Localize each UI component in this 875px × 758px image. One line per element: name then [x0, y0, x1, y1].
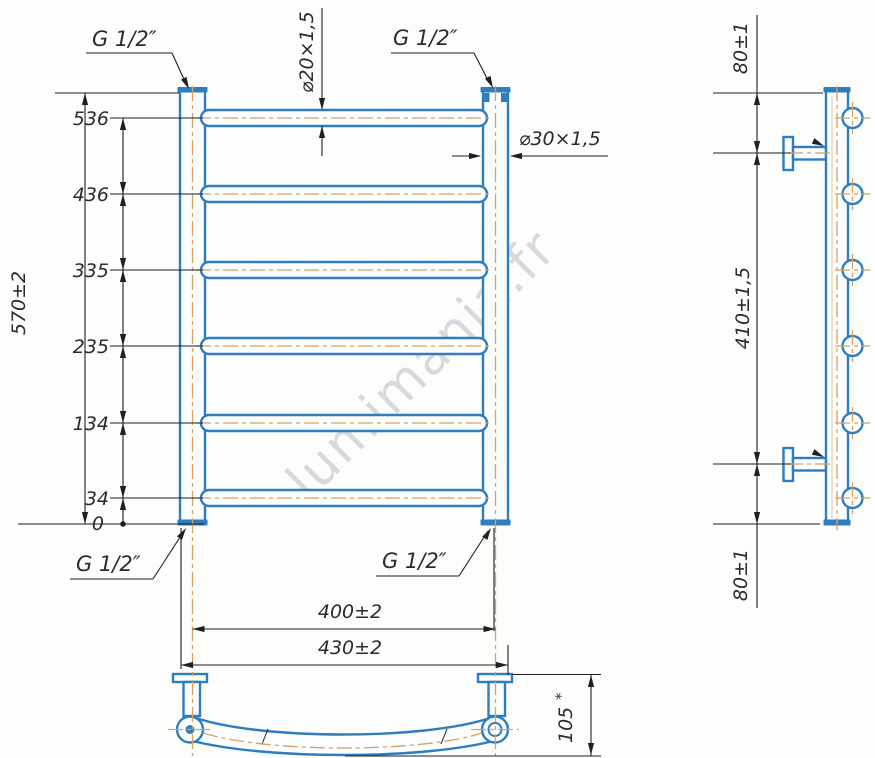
level-235: 235 — [73, 336, 109, 358]
dim-depth: 105 — [555, 707, 577, 743]
datum-dot — [120, 521, 126, 527]
bottom-right-bracket-stem — [489, 682, 506, 716]
level-0: 0 — [92, 513, 104, 535]
dim-overall-height: 570±2 — [8, 271, 30, 335]
thread-label-bottom-right: G 1/2″ — [382, 549, 447, 573]
towel-rail-technical-drawing: lumimania.fr — [0, 0, 875, 758]
dim-rung-tube: ⌀20×1,5 — [296, 11, 318, 93]
dim-overall-width: 430±2 — [318, 637, 382, 659]
dim-depth-note: * — [552, 692, 570, 700]
level-536: 536 — [73, 108, 109, 130]
bottom-left-bracket-stem — [184, 682, 201, 716]
front-right-fitting-thread-right — [501, 93, 508, 102]
dim-axis-width: 400±2 — [318, 601, 382, 623]
dim-post-tube: ⌀30×1,5 — [519, 128, 601, 150]
level-34: 34 — [85, 488, 109, 510]
bottom-curved-rung — [189, 718, 497, 755]
drawing-page: lumimania.fr — [0, 0, 875, 758]
level-436: 436 — [73, 184, 109, 206]
bottom-left-bracket-plate — [173, 674, 207, 682]
bottom-view — [173, 674, 512, 755]
front-right-fitting-thread-left — [483, 93, 490, 102]
dim-bracket-spacing: 410±1,5 — [732, 267, 754, 349]
thread-label-bottom-left: G 1/2″ — [76, 552, 141, 576]
thread-label-top-left: G 1/2″ — [92, 27, 157, 51]
dim-top-bracket-offset: 80±1 — [730, 22, 752, 74]
level-134: 134 — [73, 413, 109, 435]
dim-bottom-bracket-offset: 80±1 — [730, 549, 752, 601]
level-335: 335 — [73, 260, 109, 282]
thread-label-top-right: G 1/2″ — [393, 26, 458, 50]
